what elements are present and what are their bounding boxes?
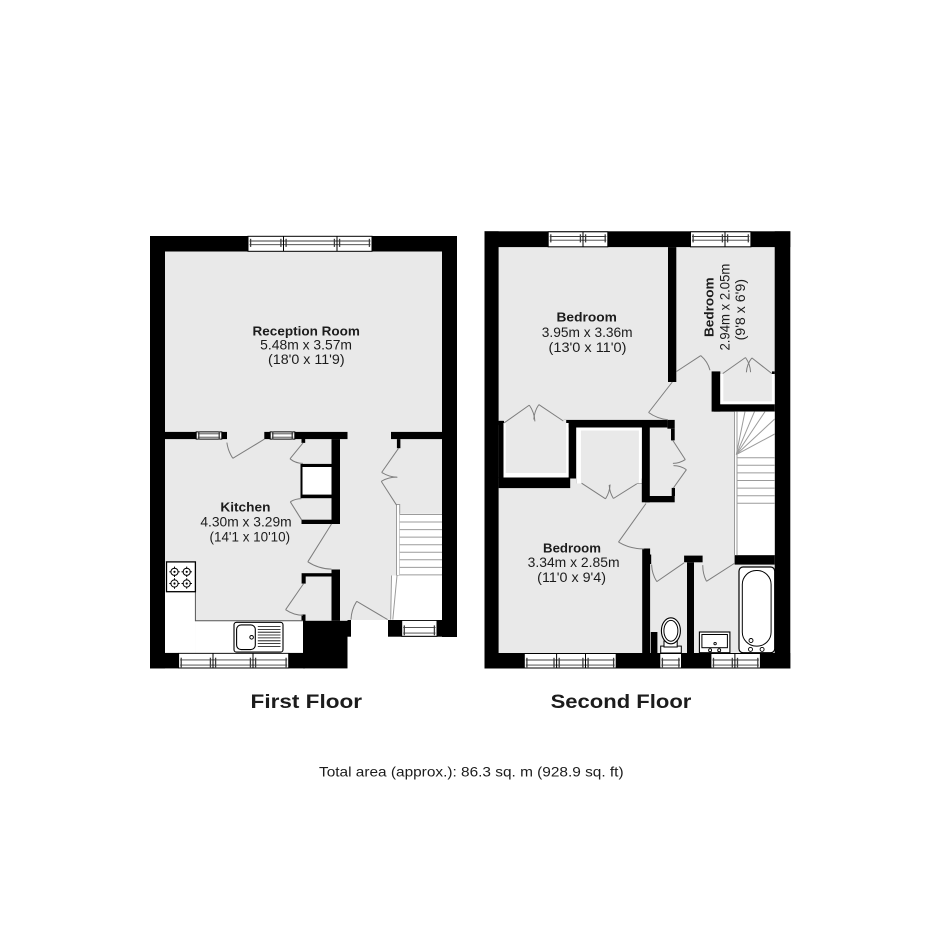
svg-text:(18'0 x 11'9): (18'0 x 11'9)	[268, 352, 345, 367]
svg-text:Bedroom: Bedroom	[543, 540, 601, 555]
svg-text:2.94m x 2.05m: 2.94m x 2.05m	[718, 264, 733, 351]
svg-text:(11'0 x 9'4): (11'0 x 9'4)	[537, 570, 606, 585]
svg-text:3.95m x 3.36m: 3.95m x 3.36m	[542, 325, 633, 340]
svg-text:Bedroom: Bedroom	[701, 277, 716, 337]
svg-text:Reception Room: Reception Room	[253, 323, 360, 338]
svg-text:Total area (approx.): 86.3 sq.: Total area (approx.): 86.3 sq. m (928.9 …	[319, 763, 624, 779]
svg-text:Second Floor: Second Floor	[551, 691, 692, 713]
svg-text:First Floor: First Floor	[251, 691, 363, 713]
svg-text:Bedroom: Bedroom	[557, 310, 617, 325]
svg-text:3.34m x 2.85m: 3.34m x 2.85m	[528, 555, 620, 570]
svg-text:4.30m x 3.29m: 4.30m x 3.29m	[200, 515, 291, 530]
svg-text:(13'0 x 11'0): (13'0 x 11'0)	[549, 340, 627, 355]
svg-text:(14'1 x 10'10): (14'1 x 10'10)	[210, 529, 291, 544]
svg-text:Kitchen: Kitchen	[220, 499, 270, 514]
svg-text:(9'8 x 6'9): (9'8 x 6'9)	[733, 279, 748, 340]
svg-text:5.48m x 3.57m: 5.48m x 3.57m	[260, 338, 352, 353]
